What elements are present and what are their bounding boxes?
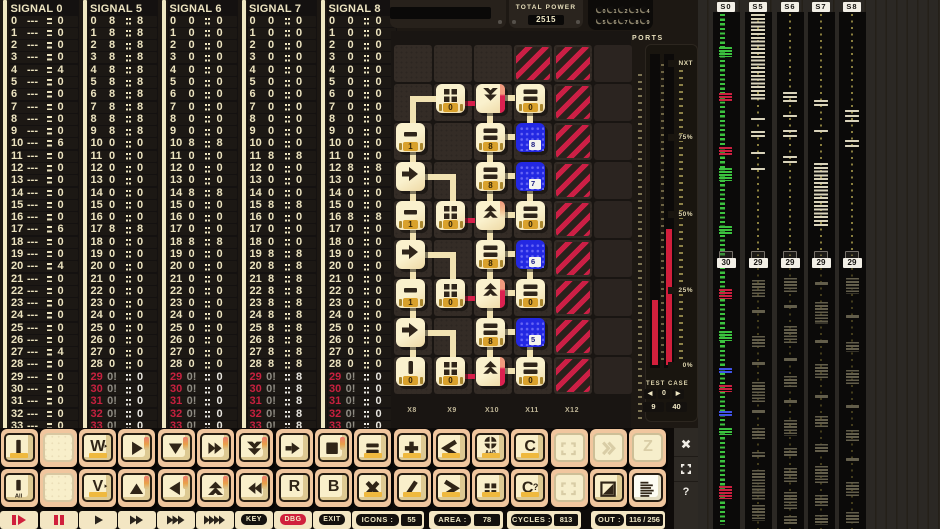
svg-text:All: All	[15, 493, 23, 498]
